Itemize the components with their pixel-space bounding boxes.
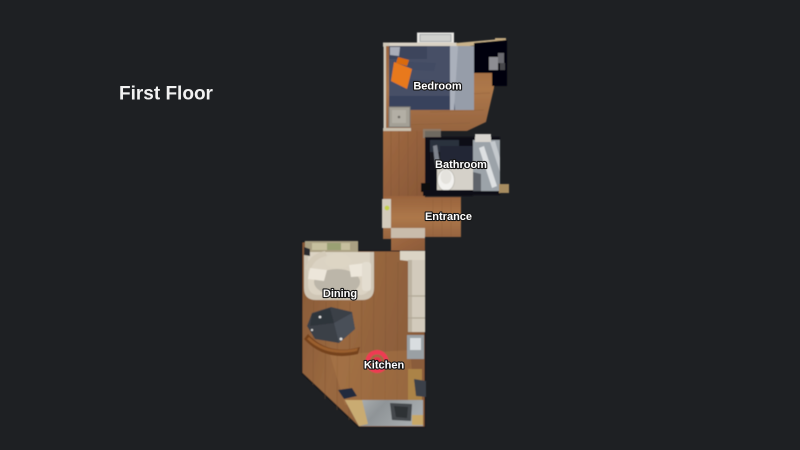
svg-text:Bedroom: Bedroom <box>413 81 462 93</box>
svg-text:First Floor: First Floor <box>119 84 214 105</box>
svg-text:Bathroom: Bathroom <box>435 159 487 171</box>
svg-text:Kitchen: Kitchen <box>364 360 405 372</box>
svg-text:Dining: Dining <box>323 288 357 300</box>
svg-text:Entrance: Entrance <box>425 211 472 223</box>
